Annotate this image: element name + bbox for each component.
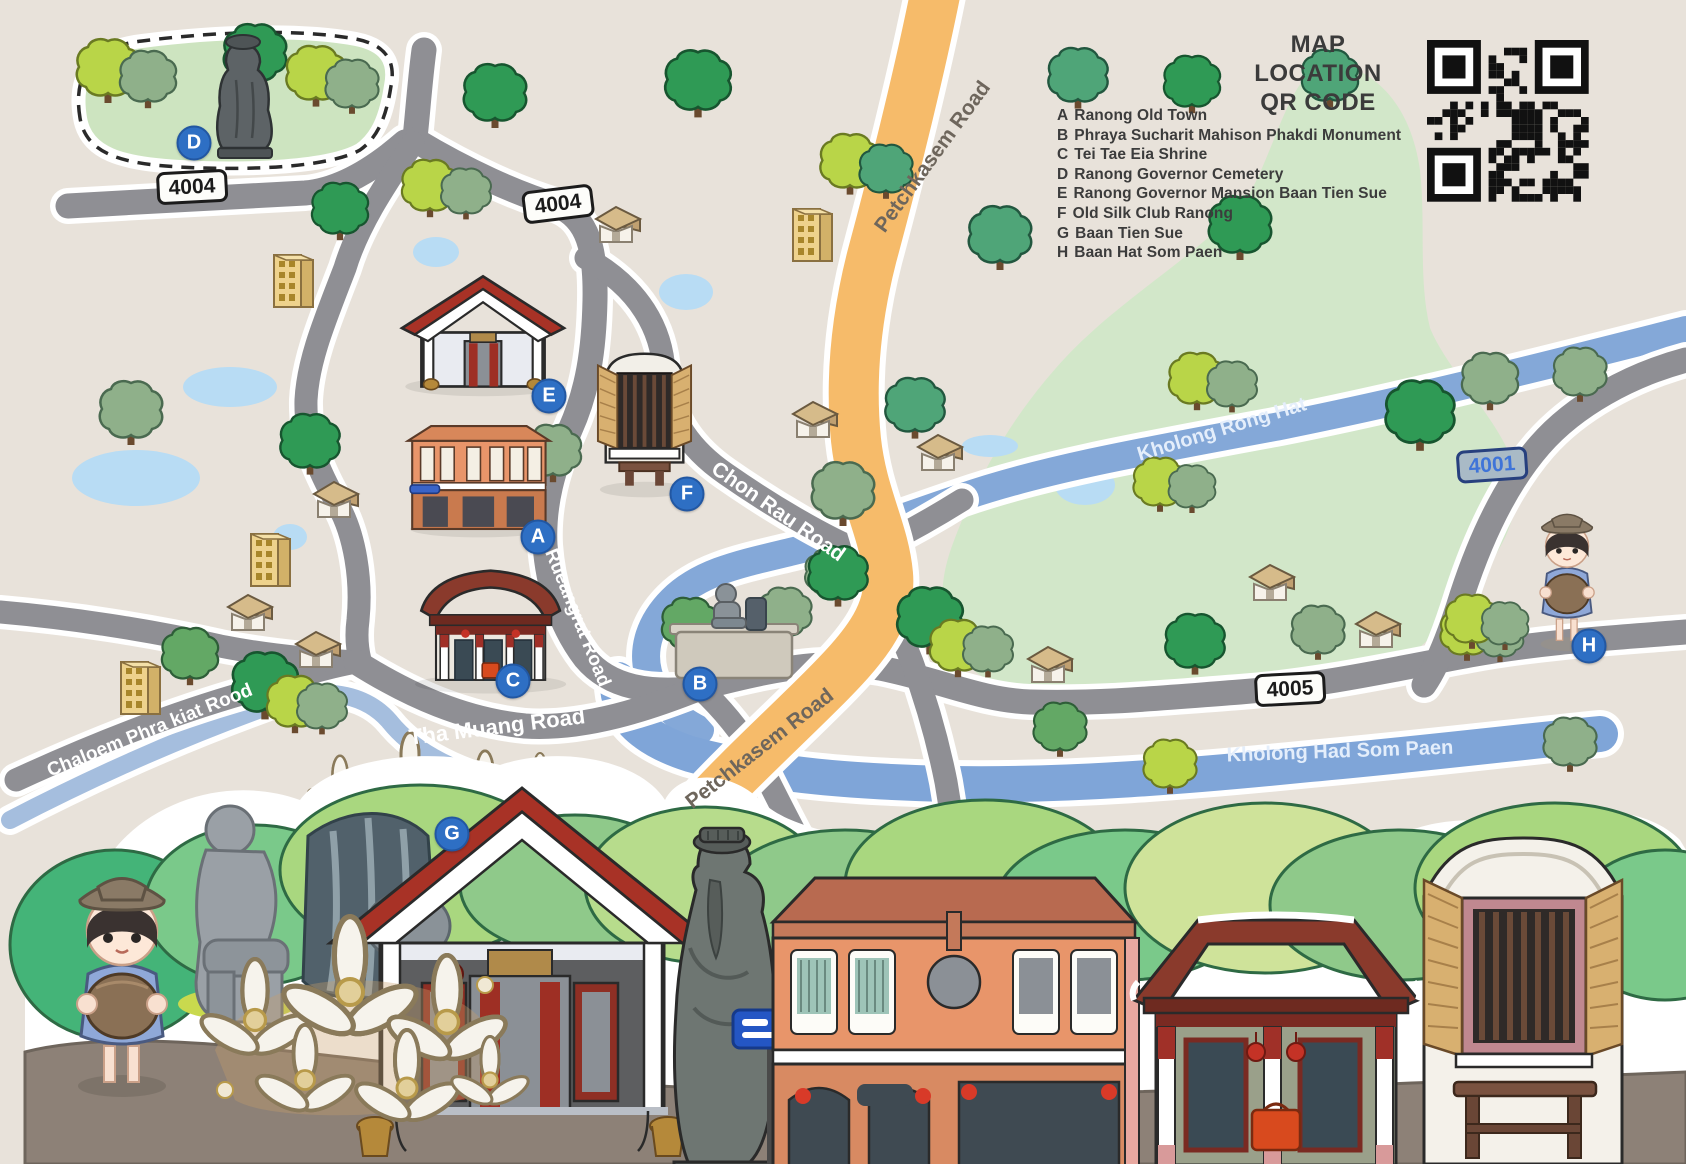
legend-item-a: ARanong Old Town <box>1057 106 1401 126</box>
map-marker-f[interactable]: F <box>670 477 705 512</box>
route-badge-4004-west: 4004 <box>156 169 228 206</box>
legend-item-d: DRanong Governor Cemetery <box>1057 165 1401 185</box>
map-marker-e[interactable]: E <box>532 379 567 414</box>
map-marker-a[interactable]: A <box>521 520 556 555</box>
ranong-old-town-illustrated-map: MAP LOCATION QR CODE ARanong Old Town BP… <box>0 0 1686 1164</box>
map-marker-g[interactable]: G <box>435 817 470 852</box>
old-window-building-illustration <box>1424 838 1622 1164</box>
map-marker-d[interactable]: D <box>177 126 212 161</box>
route-badge-4001: 4001 <box>1456 446 1529 484</box>
pond-icon <box>962 435 1018 457</box>
legend-item-f: FOld Silk Club Ranong <box>1057 204 1401 224</box>
road-north-stub-path <box>415 50 424 138</box>
pond-icon <box>183 367 277 407</box>
map-marker-h[interactable]: H <box>1572 629 1607 664</box>
legend: ARanong Old Town BPhraya Sucharit Mahiso… <box>1057 106 1401 263</box>
legend-item-c: CTei Tae Eia Shrine <box>1057 145 1401 165</box>
legend-item-e: ERanong Governor Mansion Baan Tien Sue <box>1057 184 1401 204</box>
building-icon <box>251 534 290 586</box>
pond-icon <box>72 450 200 506</box>
old-town-shophouse-icon <box>408 426 550 537</box>
route-badge-4005: 4005 <box>1254 671 1326 708</box>
building-icon <box>274 255 313 307</box>
pond-icon <box>413 237 459 267</box>
legend-item-h: HBaan Hat Som Paen <box>1057 243 1401 263</box>
orange-shophouse-illustration <box>773 878 1139 1164</box>
legend-item-g: GBaan Tien Sue <box>1057 224 1401 244</box>
page-title: MAP LOCATION QR CODE <box>1228 30 1408 117</box>
map-canvas <box>0 0 1686 1164</box>
building-icon <box>121 662 160 714</box>
title-line-1: MAP LOCATION <box>1228 30 1408 88</box>
building-icon <box>793 209 832 261</box>
map-marker-c[interactable]: C <box>496 664 531 699</box>
map-marker-b[interactable]: B <box>683 667 718 702</box>
pond-icon <box>659 274 713 310</box>
legend-item-b: BPhraya Sucharit Mahison Phakdi Monument <box>1057 126 1401 146</box>
